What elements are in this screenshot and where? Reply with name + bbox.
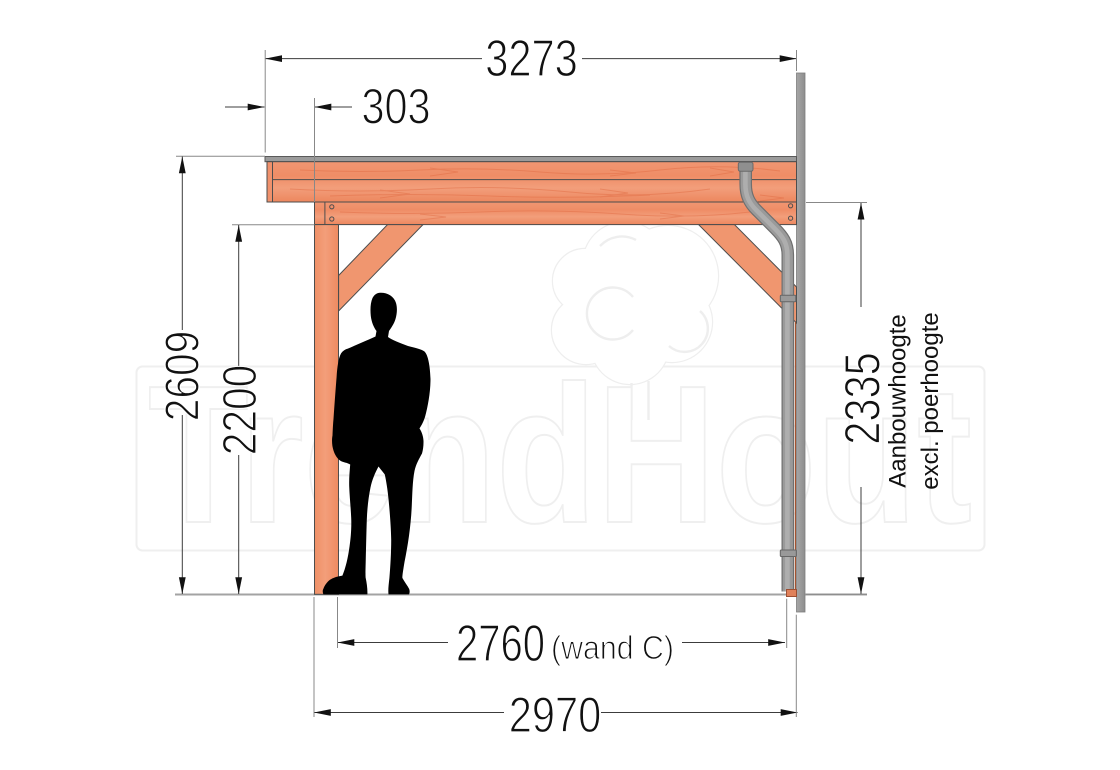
svg-text:Aanbouwhoogte: Aanbouwhoogte — [885, 314, 912, 487]
svg-text:(wand C): (wand C) — [551, 629, 674, 666]
svg-text:303: 303 — [362, 79, 431, 135]
svg-text:2609: 2609 — [157, 331, 210, 422]
svg-text:2970: 2970 — [509, 687, 602, 743]
svg-text:2200: 2200 — [214, 365, 267, 456]
svg-text:excl. poerhoogte: excl. poerhoogte — [917, 312, 944, 489]
svg-text:2760: 2760 — [456, 615, 545, 673]
svg-text:3273: 3273 — [485, 30, 578, 88]
svg-text:2335: 2335 — [835, 352, 891, 445]
